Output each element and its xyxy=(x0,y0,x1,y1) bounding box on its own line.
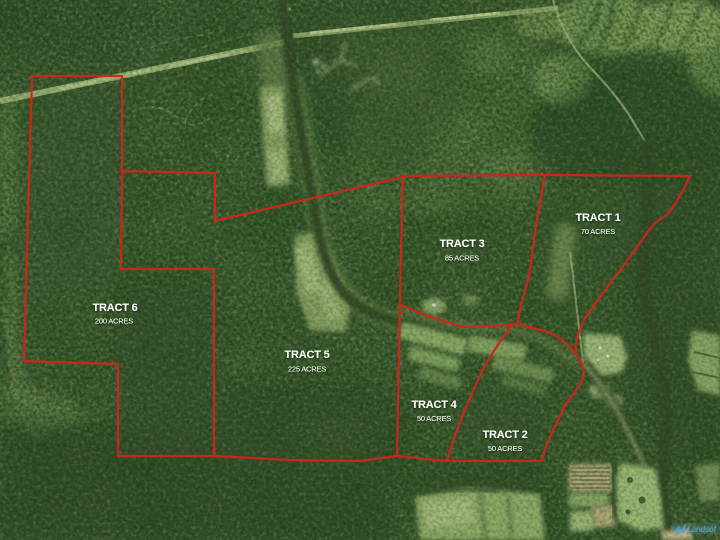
svg-text:50 ACRES: 50 ACRES xyxy=(488,444,522,453)
svg-text:225 ACRES: 225 ACRES xyxy=(288,365,326,374)
svg-text:Landsol: Landsol xyxy=(687,525,717,534)
svg-text:TRACT 4: TRACT 4 xyxy=(411,399,457,411)
svg-text:TRACT 1: TRACT 1 xyxy=(575,212,620,224)
svg-text:70 ACRES: 70 ACRES xyxy=(581,227,615,236)
svg-text:200 ACRES: 200 ACRES xyxy=(95,317,133,326)
svg-text:TRACT 2: TRACT 2 xyxy=(482,429,527,441)
svg-text:85 ACRES: 85 ACRES xyxy=(445,254,479,263)
svg-text:50 ACRES: 50 ACRES xyxy=(417,414,451,423)
svg-text:TRACT 3: TRACT 3 xyxy=(439,238,484,250)
svg-text:TRACT 6: TRACT 6 xyxy=(92,302,137,314)
svg-text:TRACT 5: TRACT 5 xyxy=(284,349,329,361)
